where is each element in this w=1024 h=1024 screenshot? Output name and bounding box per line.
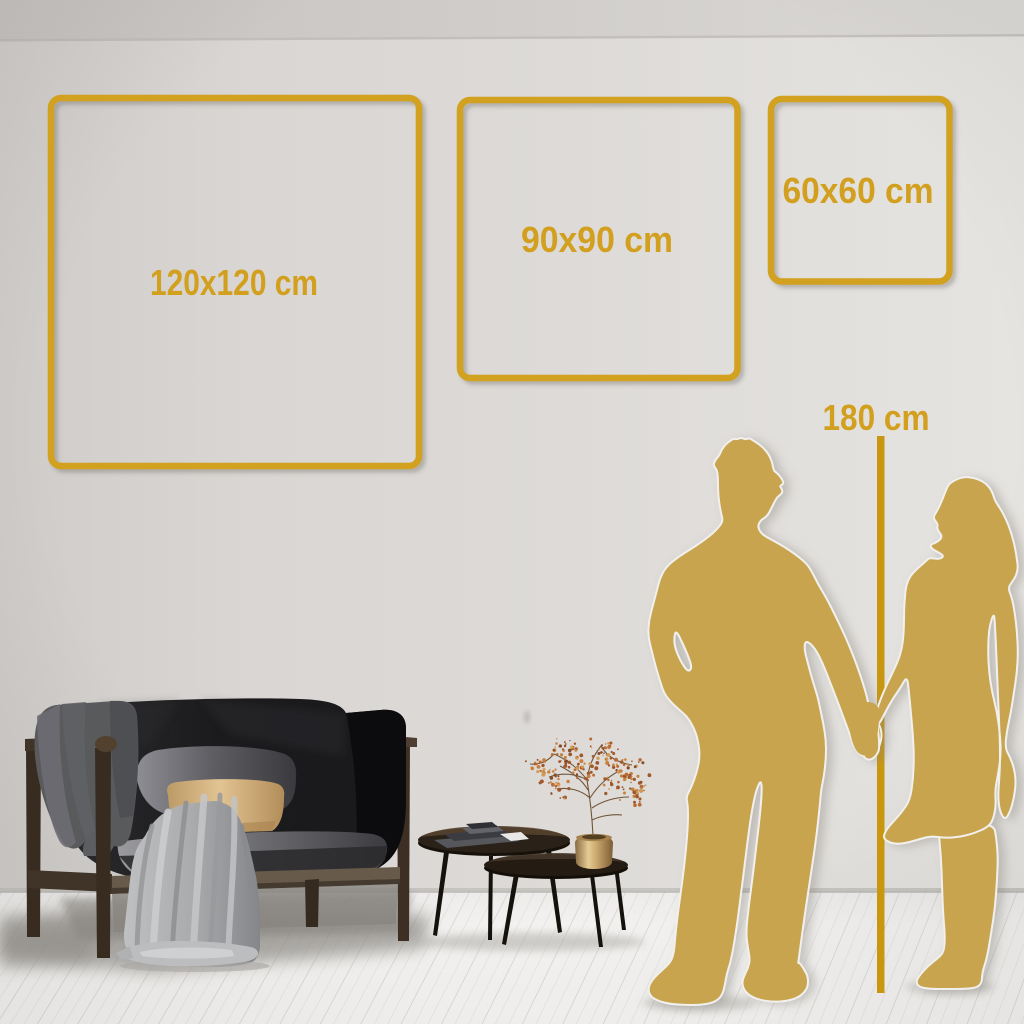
svg-text:120x120 cm: 120x120 cm bbox=[150, 262, 318, 303]
svg-text:90x90 cm: 90x90 cm bbox=[521, 219, 673, 260]
svg-text:180 cm: 180 cm bbox=[823, 397, 930, 438]
svg-text:60x60 cm: 60x60 cm bbox=[783, 170, 934, 211]
